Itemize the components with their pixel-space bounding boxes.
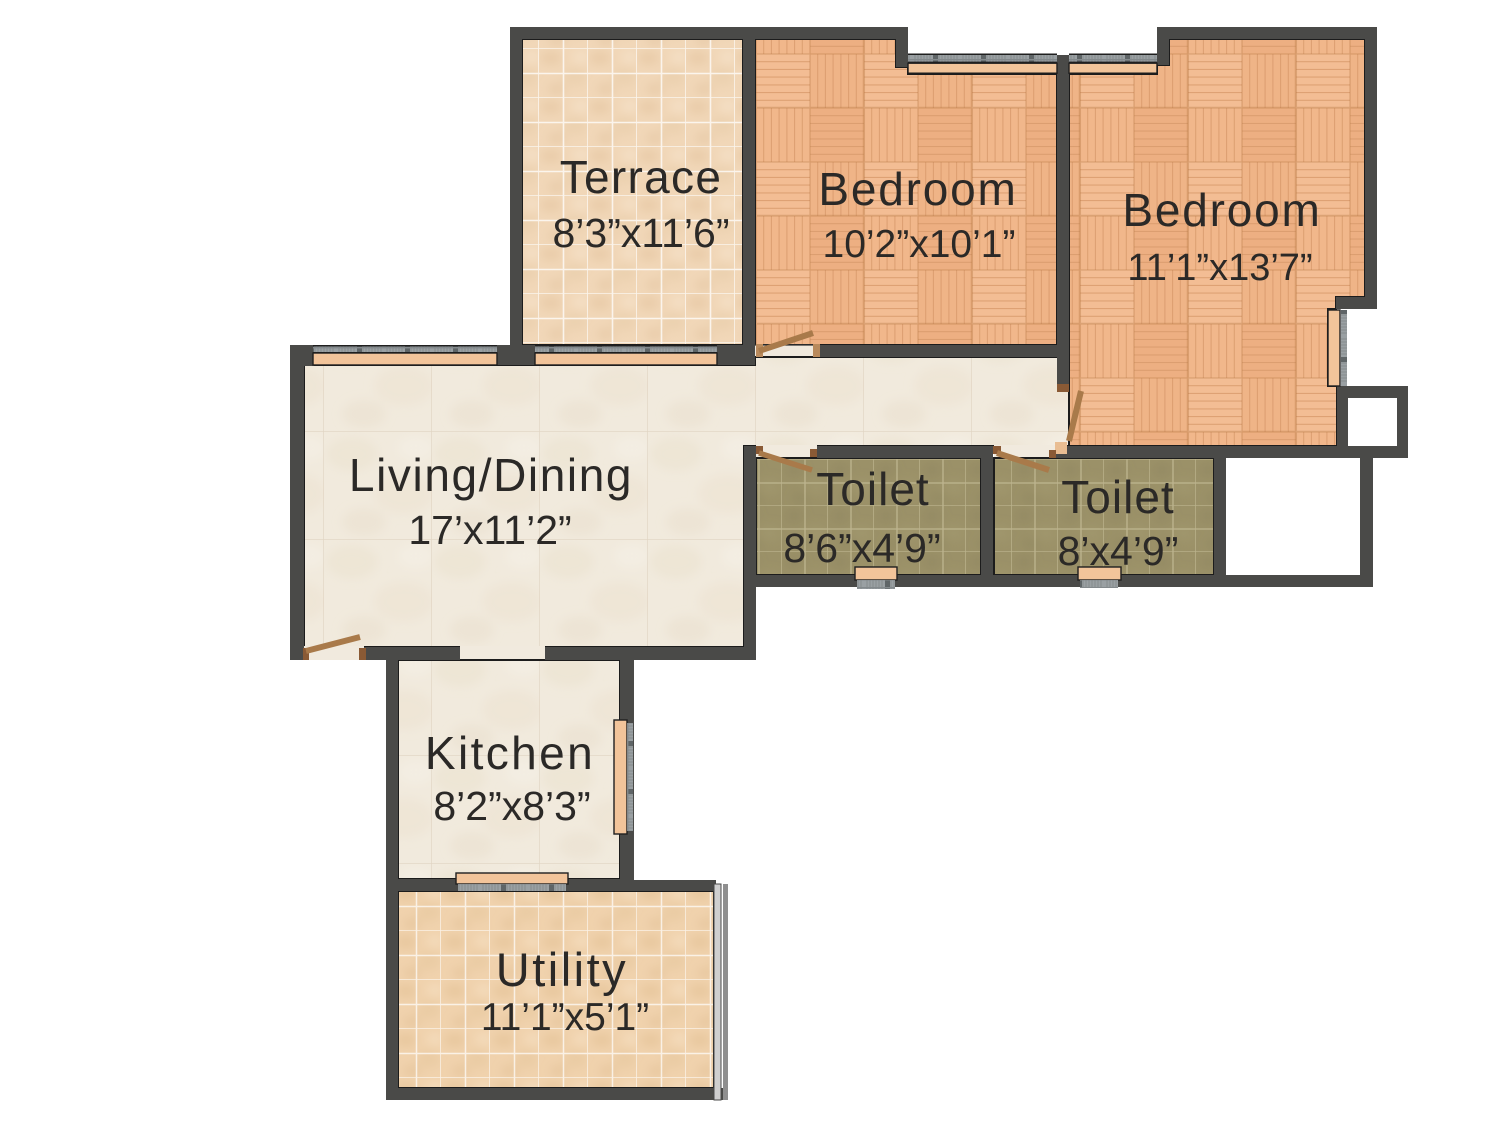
svg-text:8’2”x8’3”: 8’2”x8’3” [433,783,590,829]
svg-text:Bedroom: Bedroom [1122,184,1321,236]
svg-text:Bedroom: Bedroom [818,163,1017,215]
svg-text:11’1”x5’1”: 11’1”x5’1” [481,996,649,1039]
svg-text:Kitchen: Kitchen [425,727,595,779]
svg-text:8’3”x11’6”: 8’3”x11’6” [553,210,730,256]
svg-text:10’2”x10’1”: 10’2”x10’1” [823,223,1016,266]
svg-text:8’x4’9”: 8’x4’9” [1058,528,1179,574]
svg-text:Terrace: Terrace [560,151,723,203]
svg-text:Toilet: Toilet [816,463,929,515]
svg-text:Living/Dining: Living/Dining [349,449,633,501]
svg-text:Toilet: Toilet [1061,471,1174,523]
svg-text:8’6”x4’9”: 8’6”x4’9” [783,525,940,571]
svg-text:17’x11’2”: 17’x11’2” [408,507,571,553]
svg-text:11’1”x13’7”: 11’1”x13’7” [1127,247,1312,289]
svg-text:Utility: Utility [496,943,628,996]
